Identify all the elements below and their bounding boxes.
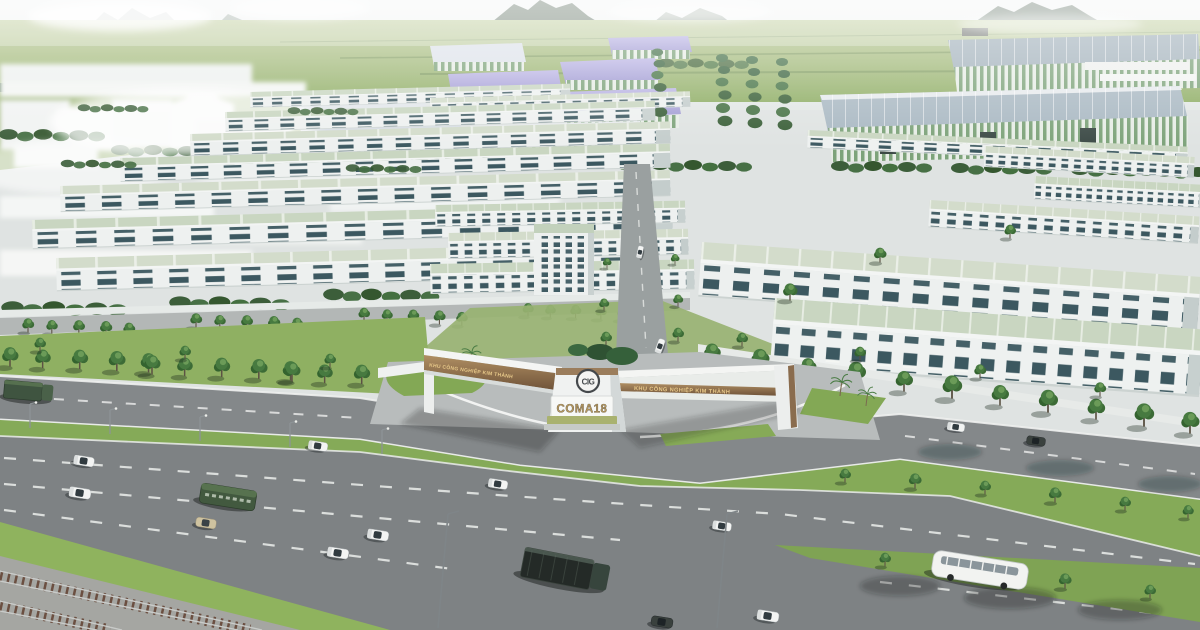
townhouse-row [928, 200, 1199, 244]
aerial-render: KHU CÔNG NGHIỆP KIM THÀNH KHU CÔNG NGHIỆ… [0, 0, 1200, 630]
gate-pylon: CIG COMA18 [544, 368, 626, 432]
render-canvas: KHU CÔNG NGHIỆP KIM THÀNH KHU CÔNG NGHIỆ… [0, 0, 1200, 630]
atmospheric-haze [0, 0, 1200, 150]
sign-step [544, 424, 620, 430]
coma18-sign-text: COMA18 [557, 404, 608, 416]
corner-building [534, 224, 594, 295]
cig-logo-text: CIG [582, 378, 595, 387]
townhouse-row [1034, 176, 1200, 208]
